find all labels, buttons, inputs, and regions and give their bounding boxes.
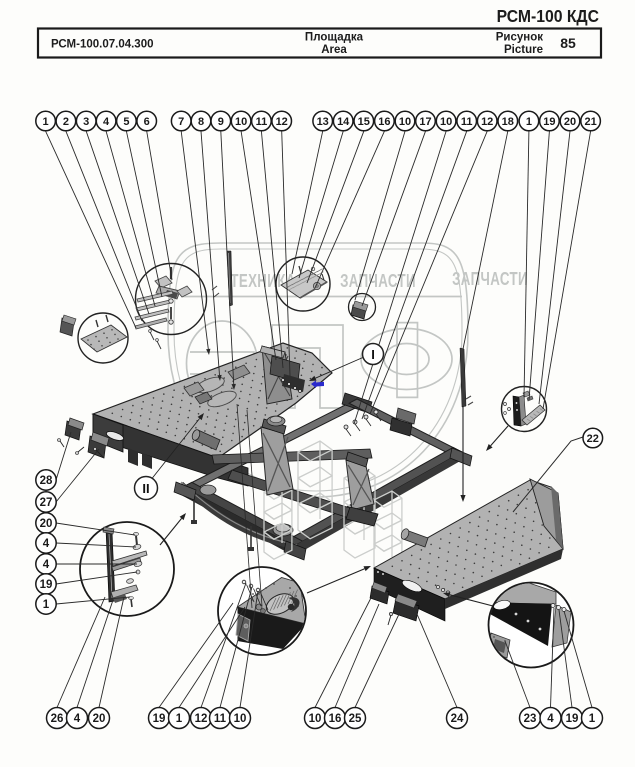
svg-text:РСМ-100 КДС: РСМ-100 КДС [497,6,599,26]
svg-text:12: 12 [481,116,493,128]
svg-text:ЗАПЧАСТИ: ЗАПЧАСТИ [340,271,416,292]
svg-text:17: 17 [419,116,431,128]
svg-text:4: 4 [74,713,81,725]
svg-text:4: 4 [43,559,50,571]
svg-text:10: 10 [309,713,322,725]
svg-text:21: 21 [584,116,596,128]
svg-text:25: 25 [349,713,362,725]
svg-text:1: 1 [589,713,596,725]
svg-text:19: 19 [153,713,166,725]
svg-text:13: 13 [317,116,329,128]
svg-text:19: 19 [543,116,555,128]
svg-text:ЗАПЧАСТИ: ЗАПЧАСТИ [452,269,528,290]
svg-text:РСМ-100.07.04.300: РСМ-100.07.04.300 [51,39,154,51]
svg-text:11: 11 [461,116,473,128]
svg-text:26: 26 [51,713,64,725]
svg-text:19: 19 [40,579,53,591]
svg-text:20: 20 [40,518,53,530]
svg-text:4: 4 [547,713,554,725]
svg-text:14: 14 [337,116,350,128]
svg-text:15: 15 [358,116,370,128]
svg-text:22: 22 [587,433,599,445]
svg-text:3: 3 [83,116,89,128]
svg-text:1: 1 [526,116,532,128]
svg-text:Area: Area [321,44,347,56]
svg-text:9: 9 [218,116,224,128]
svg-text:20: 20 [564,116,576,128]
svg-text:Рисунок: Рисунок [496,32,544,44]
svg-text:4: 4 [43,538,50,550]
svg-text:5: 5 [123,116,129,128]
svg-text:Picture: Picture [504,44,543,56]
svg-text:4: 4 [103,116,110,128]
svg-text:II: II [142,481,149,496]
svg-text:16: 16 [329,713,342,725]
svg-text:1: 1 [43,116,49,128]
svg-text:I: I [371,347,375,362]
svg-text:27: 27 [40,497,53,509]
svg-text:11: 11 [214,713,227,725]
svg-text:1: 1 [176,713,183,725]
svg-text:2: 2 [63,116,69,128]
svg-text:12: 12 [276,116,288,128]
svg-text:Площадка: Площадка [305,32,364,44]
svg-text:23: 23 [524,713,537,725]
svg-text:12: 12 [195,713,208,725]
svg-text:8: 8 [198,116,204,128]
svg-text:20: 20 [93,713,106,725]
svg-text:10: 10 [234,713,247,725]
svg-text:85: 85 [560,35,576,51]
svg-text:7: 7 [178,116,184,128]
svg-text:10: 10 [399,116,411,128]
svg-text:28: 28 [40,475,53,487]
svg-text:19: 19 [566,713,579,725]
svg-text:16: 16 [378,116,390,128]
svg-text:6: 6 [144,116,150,128]
svg-text:11: 11 [256,116,268,128]
svg-text:10: 10 [440,116,452,128]
svg-text:10: 10 [235,116,247,128]
svg-text:1: 1 [43,599,50,611]
svg-text:18: 18 [502,116,514,128]
svg-text:24: 24 [451,713,464,725]
